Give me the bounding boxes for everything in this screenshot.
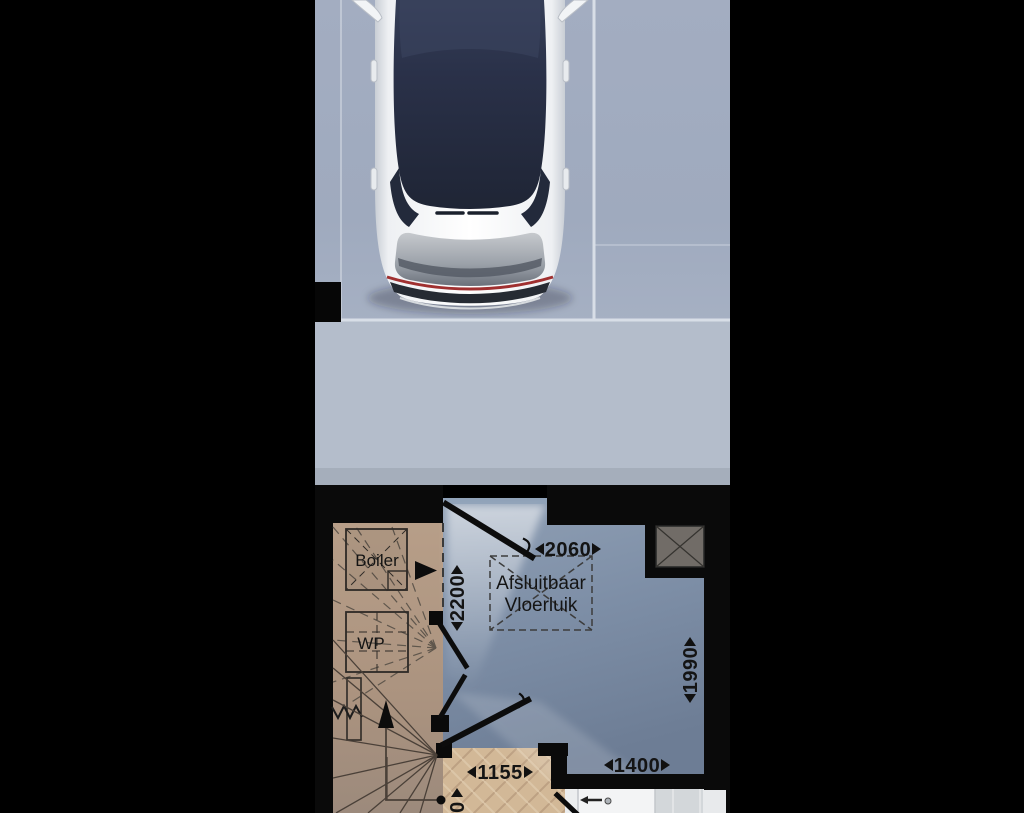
- drain-icon: [605, 798, 611, 804]
- dimension-garage-right-value: 1990: [680, 647, 702, 694]
- wall-shadow: [315, 468, 730, 485]
- bathroom-floor: [565, 789, 726, 813]
- floorplan-render: Boiler WP: [0, 0, 1024, 813]
- driveway-lower-slab: [315, 320, 730, 485]
- parked-car: [352, 0, 588, 314]
- entry-threshold: [444, 498, 547, 504]
- dimension-bottom-right: 1400: [604, 755, 670, 777]
- scene: Boiler WP: [0, 0, 1024, 813]
- dimension-garage-top-value: 2060: [545, 539, 592, 561]
- dimension-garage-top: 2060: [535, 539, 601, 561]
- floor-hatch-label-line1: Afsluitbaar: [496, 573, 586, 594]
- dimension-garage-left-value: 2200: [447, 575, 469, 622]
- shaft-box: [656, 526, 704, 567]
- floor-hatch-label-line2: Vloerluik: [505, 595, 578, 616]
- dimension-garage-right: 1990: [680, 637, 702, 703]
- driveway-post: [315, 282, 341, 322]
- dimension-garage-left: 2200: [447, 565, 469, 631]
- dimension-hall-value: 1155: [477, 762, 522, 784]
- dimension-bottom-partial-value: 0: [447, 801, 469, 813]
- boiler-label: Boiler: [355, 551, 399, 570]
- car-trunk: [395, 233, 545, 286]
- stairs-walkline-dot: [437, 796, 446, 805]
- floor-plan: Boiler WP: [315, 485, 730, 813]
- wp-label: WP: [357, 634, 384, 653]
- dimension-bottom-right-value: 1400: [614, 755, 661, 777]
